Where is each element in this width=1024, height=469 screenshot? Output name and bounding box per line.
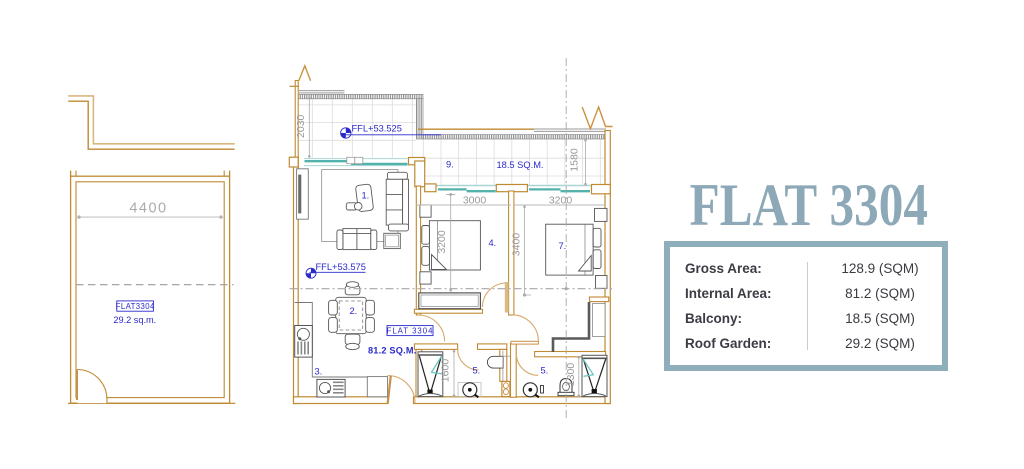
svg-text:3200: 3200: [549, 194, 573, 206]
svg-text:7.: 7.: [559, 241, 567, 251]
svg-text:2030: 2030: [295, 114, 307, 138]
svg-text:4.: 4.: [489, 238, 497, 248]
svg-text:FFL+53.575: FFL+53.575: [316, 262, 366, 272]
svg-text:2.: 2.: [350, 306, 358, 316]
svg-text:9.: 9.: [446, 160, 454, 170]
svg-text:1.: 1.: [362, 191, 370, 201]
svg-text:3200: 3200: [436, 230, 448, 254]
svg-text:1600: 1600: [439, 359, 451, 383]
svg-text:81.2 SQ.M.: 81.2 SQ.M.: [368, 346, 416, 356]
svg-text:5.: 5.: [541, 366, 549, 376]
svg-text:1580: 1580: [569, 148, 581, 172]
svg-text:3400: 3400: [510, 233, 522, 257]
svg-text:4400: 4400: [129, 201, 167, 217]
svg-text:FFL+53.525: FFL+53.525: [352, 124, 402, 134]
svg-text:5.: 5.: [473, 366, 481, 376]
svg-text:3000: 3000: [463, 194, 487, 206]
svg-text:18.5 SQ.M.: 18.5 SQ.M.: [497, 160, 544, 170]
svg-text:29.2 sq.m.: 29.2 sq.m.: [113, 315, 156, 325]
svg-text:FLAT3304: FLAT3304: [116, 302, 155, 311]
svg-text:FLAT 3304: FLAT 3304: [387, 327, 434, 336]
svg-text:3.: 3.: [315, 367, 323, 377]
